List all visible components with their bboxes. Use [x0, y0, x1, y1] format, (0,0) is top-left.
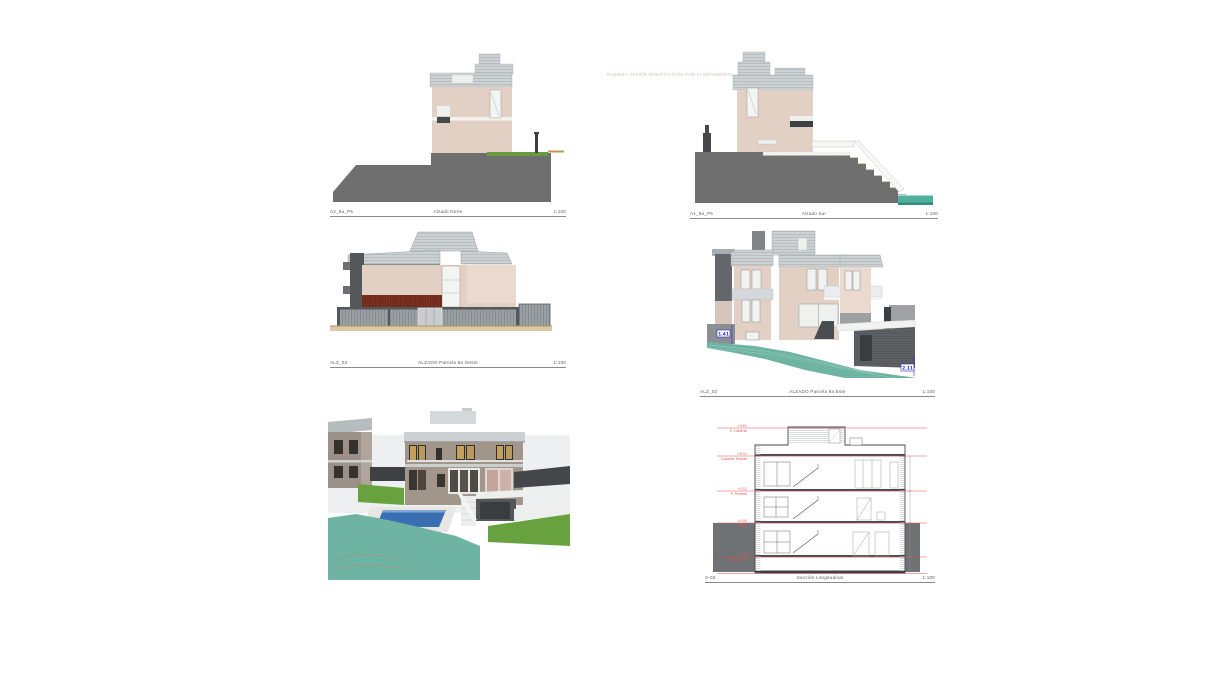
foreground-terrain [328, 514, 480, 580]
svg-text:+9.61: +9.61 [737, 424, 747, 428]
drawing-title: Alzado Norte [330, 209, 566, 214]
alzado-este-drawing: 1.41 2.11 [695, 228, 935, 378]
building-roof [733, 52, 813, 90]
fence-dark-left [370, 467, 405, 481]
drawing-title: Sección Longitudinal [705, 575, 935, 580]
titlebar-alzado-sur: A1_9a_P6 Alzado Sur 1:100 [690, 211, 938, 219]
ground-line [330, 326, 552, 332]
gate [418, 308, 442, 326]
svg-text:P. Semisótano: P. Semisótano [725, 558, 747, 562]
wood-band [362, 295, 442, 307]
building-roof [430, 54, 513, 87]
svg-text:2.11: 2.11 [902, 365, 913, 371]
titlebar-alzado-norte: A2_9a_P6 Alzado Norte 1:100 [330, 209, 566, 217]
section-windows [764, 462, 790, 553]
svg-text:+0.00: +0.00 [737, 519, 747, 523]
chimney-icon [703, 125, 711, 152]
svg-text:P. Cubierta: P. Cubierta [730, 429, 747, 433]
post-icon [534, 132, 539, 134]
panel-alzado-este: 1.41 2.11 [695, 228, 935, 378]
titlebar-alzado-oeste: ALZ_03 ALZADO Parcela 9a Oeste 1:100 [330, 360, 566, 368]
alzado-oeste-drawing [330, 230, 566, 362]
svg-text:+6.51: +6.51 [737, 452, 747, 456]
main-house [404, 408, 525, 505]
panel-seccion: +9.61 P. Cubierta +6.51 Cubierta Terraza… [705, 420, 935, 578]
svg-text:Cubierta Terraza: Cubierta Terraza [721, 457, 747, 461]
side-column [343, 253, 364, 307]
drawing-title: ALZADO Parcela 9a Este [700, 389, 935, 394]
drawing-title: ALZADO Parcela 9a Oeste [330, 360, 566, 365]
upper-windows [409, 445, 513, 462]
titlebar-alzado-este: ALZ_02 ALZADO Parcela 9a Este 1:100 [700, 389, 935, 397]
building-section [755, 427, 912, 573]
svg-text:-2.80: -2.80 [739, 553, 747, 557]
hill-mass [333, 153, 551, 202]
pool [898, 195, 933, 206]
panel-alzado-norte [330, 42, 566, 210]
svg-text:P. Baja: P. Baja [737, 524, 747, 528]
panel-3d-render [328, 408, 570, 580]
svg-text:1.41: 1.41 [718, 331, 729, 337]
panel-alzado-sur [690, 42, 938, 212]
seccion-drawing: +9.61 P. Cubierta +6.51 Cubierta Terraza… [705, 420, 935, 578]
drawing-sheet: PUDIERA SUFRIR MODIFICACIÓN POR AYUNTAMI… [0, 0, 1211, 675]
alzado-norte-drawing [330, 42, 566, 210]
svg-text:P. Primera: P. Primera [731, 492, 747, 496]
house-left-wing [732, 266, 773, 340]
panel-alzado-oeste [330, 230, 566, 362]
house-right-wing [840, 267, 871, 327]
titlebar-seccion: S-02 Sección Longitudinal 1:100 [705, 575, 935, 583]
walls [362, 265, 516, 307]
neighbor-house-left [328, 418, 372, 488]
building-walls [737, 88, 813, 152]
roofs [348, 232, 512, 266]
drawing-title: Alzado Sur [690, 211, 938, 216]
render-3d-drawing [328, 408, 570, 580]
svg-text:+3.51: +3.51 [737, 487, 747, 491]
fence [337, 304, 550, 326]
building-walls [432, 87, 512, 153]
alzado-sur-drawing [690, 42, 938, 212]
